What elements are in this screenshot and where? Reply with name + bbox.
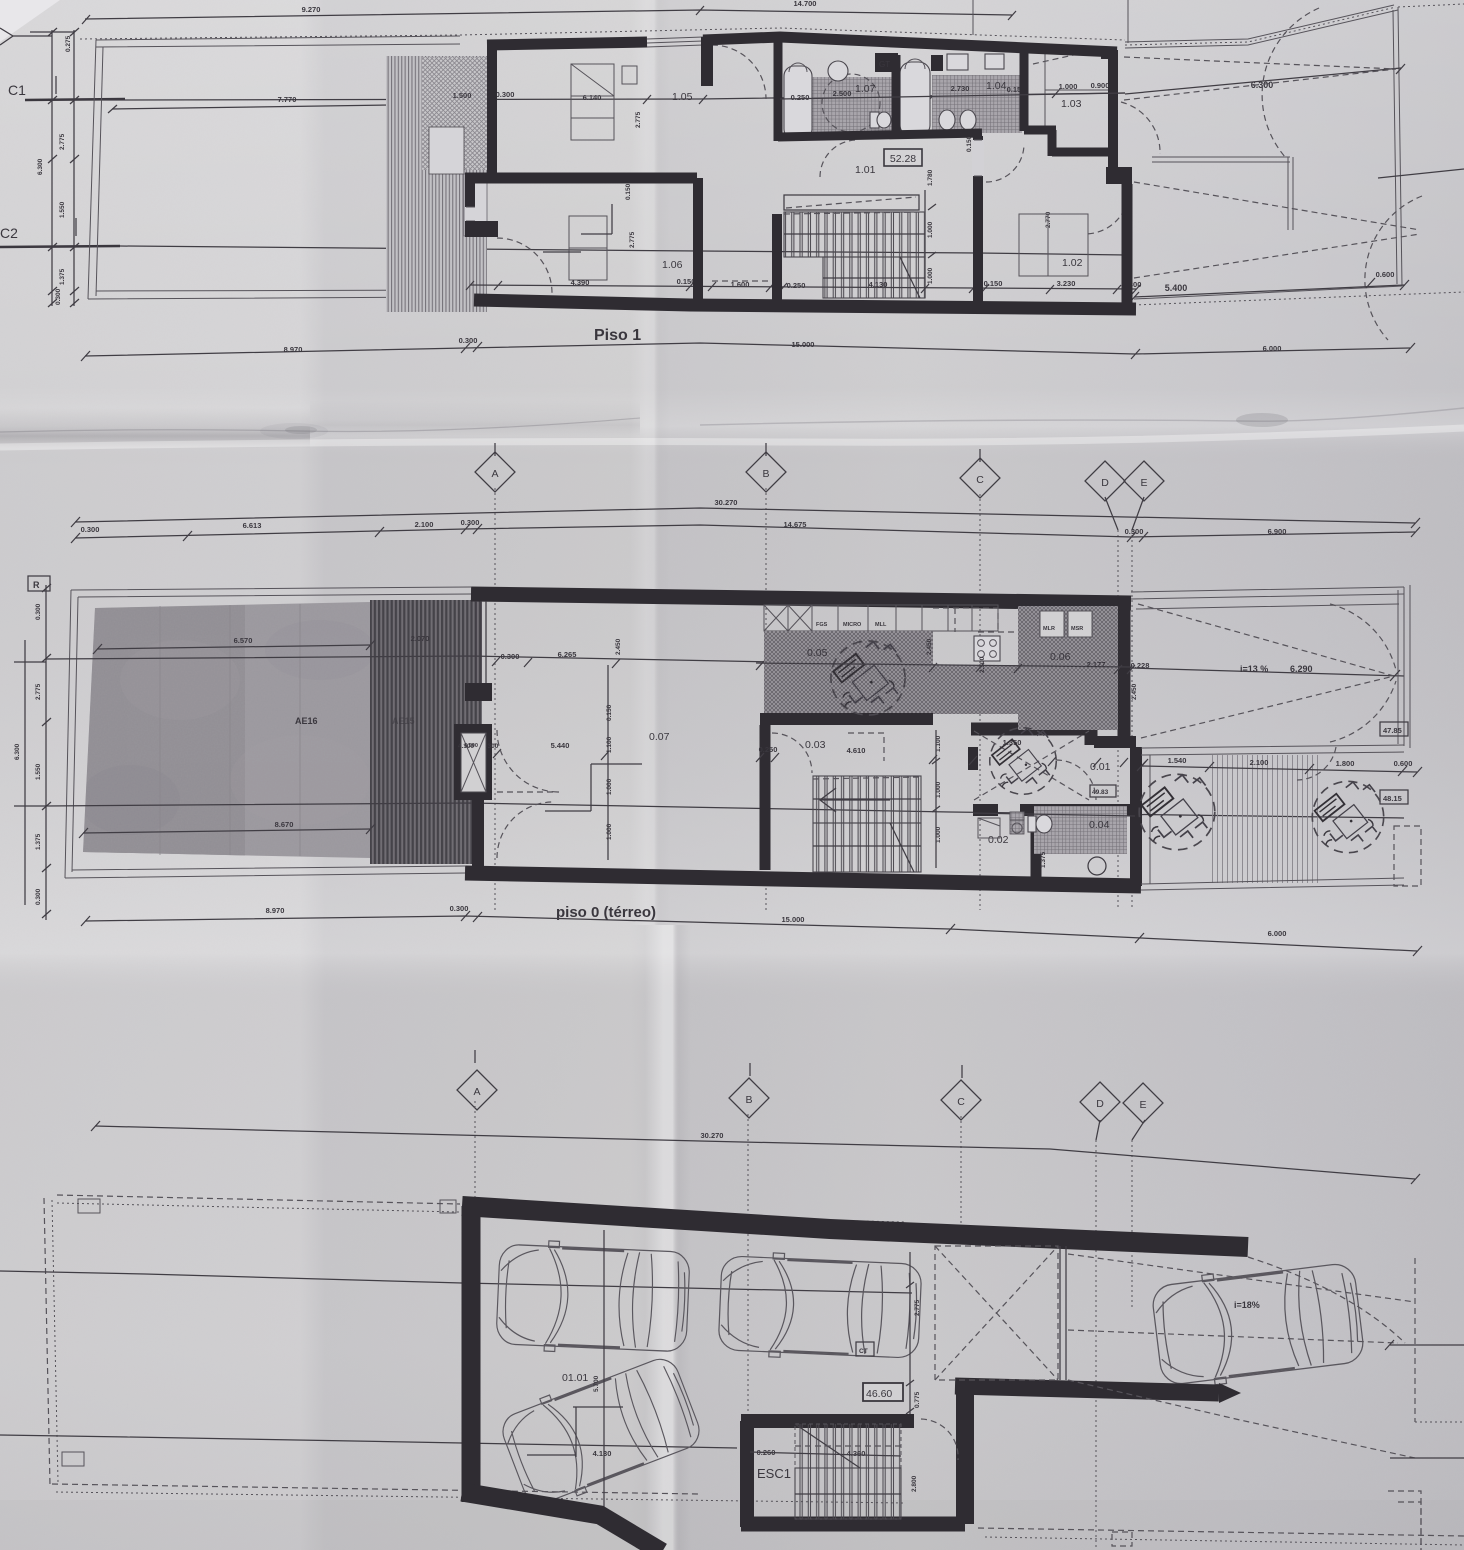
svg-text:1.000: 1.000	[606, 823, 613, 840]
svg-text:6.300: 6.300	[14, 743, 21, 760]
svg-text:4.100: 4.100	[458, 743, 475, 750]
svg-text:1.05: 1.05	[672, 91, 693, 103]
svg-text:1.500: 1.500	[453, 91, 472, 100]
svg-text:1.04: 1.04	[986, 80, 1007, 92]
svg-text:6.300: 6.300	[37, 158, 44, 175]
svg-text:14.700: 14.700	[794, 0, 817, 8]
svg-text:52.28: 52.28	[890, 153, 916, 165]
svg-text:9.270: 9.270	[302, 5, 321, 14]
svg-text:6.613: 6.613	[243, 521, 262, 530]
svg-text:Piso 1: Piso 1	[594, 327, 641, 344]
svg-text:6.265: 6.265	[558, 650, 577, 659]
svg-text:1.375: 1.375	[59, 268, 66, 285]
svg-text:2.775: 2.775	[635, 111, 642, 128]
svg-text:15.000: 15.000	[782, 915, 805, 924]
svg-text:0.150: 0.150	[677, 277, 696, 286]
svg-text:2.450: 2.450	[926, 638, 933, 655]
svg-text:14.675: 14.675	[784, 520, 807, 529]
svg-text:2.450: 2.450	[615, 638, 622, 655]
svg-text:2.450: 2.450	[1131, 683, 1138, 700]
svg-text:AE16: AE16	[295, 716, 318, 726]
svg-text:1.100: 1.100	[606, 736, 613, 753]
svg-text:C: C	[976, 474, 984, 486]
svg-text:01.01: 01.01	[562, 1372, 588, 1384]
svg-text:0.250: 0.250	[759, 745, 778, 754]
svg-text:B: B	[762, 468, 769, 480]
svg-text:7.770: 7.770	[278, 95, 297, 104]
svg-text:1.000: 1.000	[927, 221, 934, 238]
svg-text:0.01: 0.01	[1090, 761, 1111, 773]
svg-text:0.300: 0.300	[35, 888, 42, 905]
svg-text:3.230: 3.230	[1057, 279, 1076, 288]
svg-text:D: D	[1101, 477, 1109, 489]
svg-text:A: A	[473, 1086, 480, 1098]
svg-text:5.700: 5.700	[593, 1375, 600, 1392]
svg-text:1.550: 1.550	[59, 201, 66, 218]
svg-text:0.300: 0.300	[1125, 527, 1144, 536]
svg-text:FGS: FGS	[816, 622, 828, 628]
svg-text:2.800: 2.800	[911, 1475, 918, 1492]
svg-text:0.06: 0.06	[1050, 651, 1071, 663]
svg-text:1.03: 1.03	[1061, 98, 1082, 110]
svg-text:1.375: 1.375	[1040, 851, 1047, 868]
svg-text:2.730: 2.730	[951, 84, 970, 93]
svg-text:1.000: 1.000	[606, 778, 613, 795]
svg-text:2.775: 2.775	[59, 133, 66, 150]
svg-text:0.900: 0.900	[1091, 81, 1110, 90]
svg-text:0.600: 0.600	[1394, 759, 1413, 768]
svg-text:0.300: 0.300	[461, 518, 480, 527]
svg-text:0.300: 0.300	[496, 90, 515, 99]
svg-text:1.000: 1.000	[927, 267, 934, 284]
svg-text:2.775: 2.775	[914, 1299, 921, 1316]
svg-text:0.02: 0.02	[988, 834, 1009, 846]
svg-text:15.000: 15.000	[792, 340, 815, 349]
svg-text:2.100: 2.100	[1250, 758, 1269, 767]
svg-text:0.250: 0.250	[787, 281, 806, 290]
svg-text:8.670: 8.670	[275, 820, 294, 829]
svg-text:6.290: 6.290	[1290, 664, 1313, 674]
svg-text:0.275: 0.275	[65, 35, 72, 52]
svg-text:0.228: 0.228	[1131, 661, 1150, 670]
svg-text:0.300: 0.300	[459, 336, 478, 345]
svg-text:2.177: 2.177	[1087, 660, 1106, 669]
svg-text:B: B	[745, 1094, 752, 1106]
svg-text:4.360: 4.360	[847, 1449, 866, 1458]
svg-text:0.07: 0.07	[649, 731, 670, 743]
svg-text:R: R	[33, 580, 40, 590]
svg-text:A: A	[491, 468, 498, 480]
svg-text:0.300: 0.300	[81, 525, 100, 534]
svg-text:MLR: MLR	[1043, 626, 1055, 632]
svg-text:5.400: 5.400	[1165, 283, 1188, 293]
svg-text:ESC1: ESC1	[757, 1466, 791, 1481]
svg-text:6.140: 6.140	[583, 93, 602, 102]
svg-text:1.07: 1.07	[855, 83, 876, 95]
svg-text:MICRO: MICRO	[843, 622, 862, 628]
svg-text:0.300: 0.300	[501, 652, 520, 661]
svg-text:6.900: 6.900	[1268, 527, 1287, 536]
svg-text:CT: CT	[859, 1348, 868, 1355]
svg-text:C1: C1	[8, 82, 26, 98]
svg-text:6.000: 6.000	[1263, 344, 1282, 353]
svg-text:1.06: 1.06	[662, 259, 683, 271]
svg-text:1.800: 1.800	[1336, 759, 1355, 768]
svg-text:4.610: 4.610	[847, 746, 866, 755]
svg-text:GT: GT	[879, 60, 890, 69]
svg-text:1.375: 1.375	[35, 833, 42, 850]
svg-text:48.15: 48.15	[1383, 794, 1402, 803]
svg-text:2.775: 2.775	[629, 231, 636, 248]
svg-text:0.03: 0.03	[805, 739, 826, 751]
svg-text:1.01: 1.01	[855, 164, 876, 176]
svg-text:0.600: 0.600	[1376, 270, 1395, 279]
svg-text:C: C	[957, 1096, 965, 1108]
svg-text:4.130: 4.130	[593, 1449, 612, 1458]
svg-text:2.100: 2.100	[415, 520, 434, 529]
svg-text:8.970: 8.970	[266, 906, 285, 915]
svg-text:0.250: 0.250	[791, 93, 810, 102]
svg-text:MLL: MLL	[875, 622, 887, 628]
svg-text:0.05: 0.05	[807, 647, 828, 659]
svg-text:i=18%: i=18%	[1234, 1300, 1260, 1310]
svg-text:8.970: 8.970	[284, 345, 303, 354]
svg-text:30.270: 30.270	[701, 1131, 724, 1140]
svg-text:2.775: 2.775	[35, 683, 42, 700]
svg-text:6.570: 6.570	[234, 636, 253, 645]
svg-text:1.550: 1.550	[35, 763, 42, 780]
svg-text:AE15: AE15	[392, 716, 415, 726]
svg-text:6.000: 6.000	[1268, 929, 1287, 938]
svg-text:0.04: 0.04	[1089, 819, 1110, 831]
svg-text:46.60: 46.60	[866, 1388, 892, 1400]
svg-text:0.300: 0.300	[450, 904, 469, 913]
svg-text:E: E	[1139, 1099, 1146, 1111]
svg-text:D: D	[1096, 1098, 1104, 1110]
svg-text:i=13 %: i=13 %	[1240, 664, 1268, 674]
svg-text:0.300: 0.300	[55, 288, 62, 305]
svg-text:0.775: 0.775	[914, 1391, 921, 1408]
svg-text:0.150: 0.150	[966, 135, 973, 152]
svg-text:0.150: 0.150	[606, 704, 613, 721]
svg-text:0.150: 0.150	[625, 183, 632, 200]
svg-text:5.440: 5.440	[551, 741, 570, 750]
svg-text:.300: .300	[486, 743, 499, 750]
svg-text:MSR: MSR	[1071, 626, 1083, 632]
svg-text:1.780: 1.780	[927, 169, 934, 186]
svg-text:47.85: 47.85	[1383, 726, 1402, 735]
svg-text:30.270: 30.270	[715, 498, 738, 507]
svg-text:0.300: 0.300	[35, 603, 42, 620]
svg-text:2.500: 2.500	[833, 89, 852, 98]
svg-text:1.540: 1.540	[1168, 756, 1187, 765]
svg-text:C2: C2	[0, 225, 18, 241]
svg-text:2.070: 2.070	[411, 634, 430, 643]
svg-text:E: E	[1140, 477, 1147, 489]
svg-text:1.02: 1.02	[1062, 257, 1083, 269]
